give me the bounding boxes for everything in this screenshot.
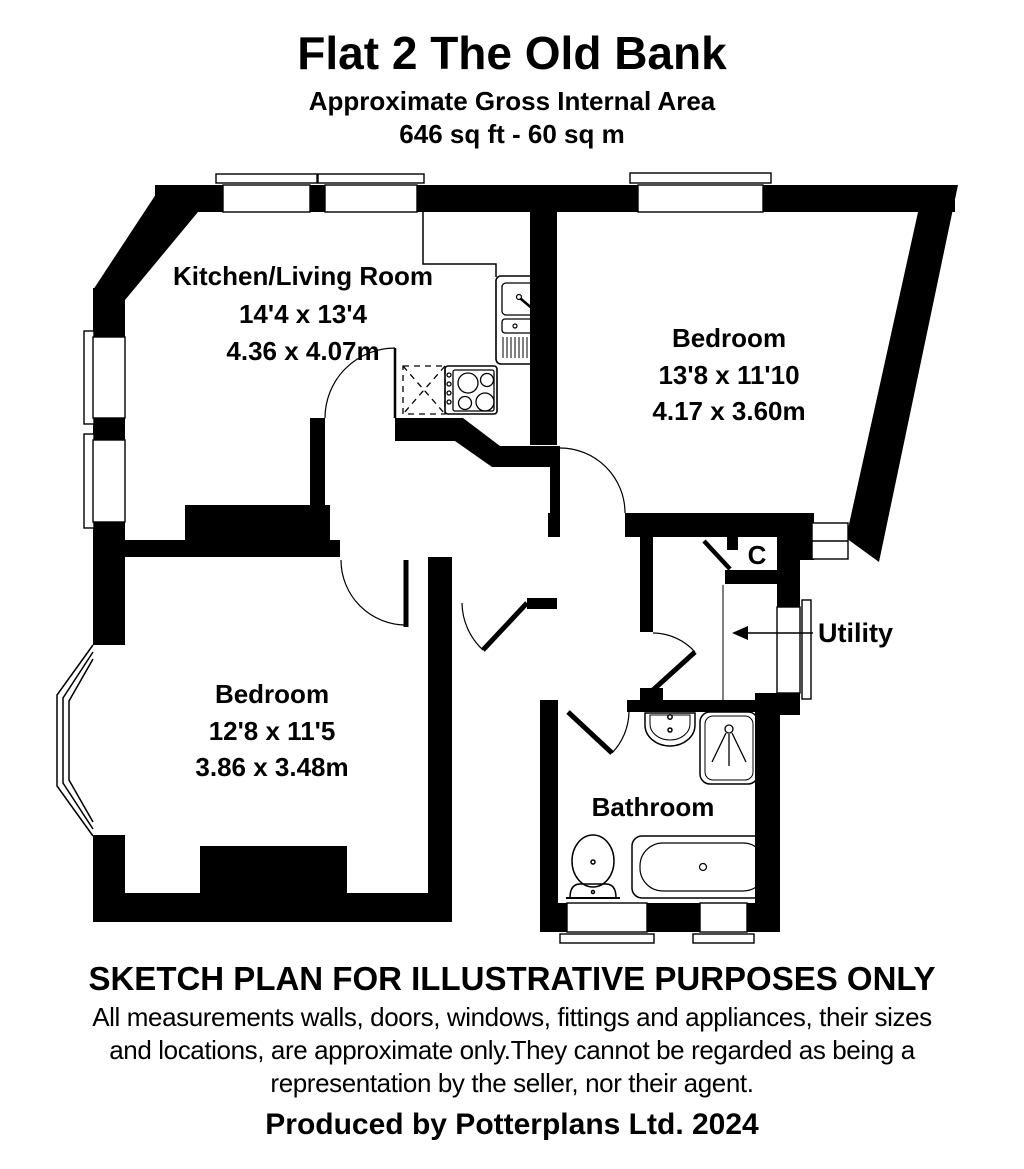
wall-slanted-right	[846, 185, 958, 562]
bedroom-right-size-metric: 4.17 x 3.60m	[652, 396, 805, 427]
wall-kitchen-bedroom-divider	[530, 212, 557, 445]
window-sill	[216, 174, 317, 183]
footer-disclaimer-line1: All measurements walls, doors, windows, …	[92, 1002, 932, 1033]
bedroom-left-label: Bedroom	[215, 679, 329, 710]
cupboard-door	[704, 541, 730, 569]
window-utility	[777, 607, 800, 693]
page-title: Flat 2 The Old Bank	[297, 26, 726, 80]
wall-lobby-stub	[640, 688, 663, 702]
worktop-edge	[423, 212, 496, 277]
toilet-icon	[566, 835, 620, 898]
footer-credit: Produced by Potterplans Ltd. 2024	[265, 1108, 758, 1142]
basin-icon	[645, 713, 695, 746]
window-sill	[802, 600, 811, 699]
window-kitchen-2	[325, 185, 417, 212]
window-left-1	[93, 337, 125, 418]
utility-arrow	[732, 626, 813, 640]
area-text: 646 sq ft - 60 sq m	[399, 119, 624, 150]
footer-heading: SKETCH PLAN FOR ILLUSTRATIVE PURPOSES ON…	[88, 960, 935, 998]
bedroom-right-size-imperial: 13'8 x 11'10	[658, 360, 799, 391]
bath-icon	[632, 836, 774, 898]
corridor-door	[462, 603, 527, 650]
window-sill	[560, 934, 654, 943]
wall-bedroom-right-bottom	[625, 513, 777, 537]
wall-lobby-west	[640, 537, 653, 632]
wall-cupboard-bottom	[725, 570, 778, 584]
kitchen-living-size-metric: 4.36 x 4.07m	[226, 336, 379, 367]
lobby-door	[653, 633, 695, 690]
window-kitchen-1	[223, 185, 310, 212]
wall-right-upper	[777, 513, 814, 560]
footer-disclaimer-line3: representation by the seller, nor their …	[270, 1068, 753, 1099]
bedroom-left-size-imperial: 12'8 x 11'5	[209, 716, 336, 747]
floorplan-page: Flat 2 The Old Bank Approximate Gross In…	[0, 0, 1024, 1169]
bedroom-right-door-leaf	[550, 448, 560, 513]
utility-arrowhead	[732, 626, 748, 640]
kitchen-fixtures	[403, 212, 546, 414]
page-subtitle: Approximate Gross Internal Area	[309, 86, 716, 117]
window-left-2	[93, 440, 125, 522]
bedroom-right-label: Bedroom	[672, 323, 786, 354]
wall-bathroom-left	[540, 700, 558, 932]
sink-unit-icon	[496, 276, 546, 364]
wall-pier-block	[185, 505, 330, 557]
bay-gap	[91, 645, 127, 835]
bedroom-left-size-metric: 3.86 x 3.48m	[195, 752, 348, 783]
bay-frame-mid	[63, 652, 93, 829]
shower-icon	[700, 712, 758, 784]
wall-bottom-bedroom	[93, 893, 452, 922]
kitchen-living-label: Kitchen/Living Room	[173, 261, 433, 292]
hob-icon	[445, 366, 497, 414]
bay-window	[57, 645, 127, 836]
appliance-space-icon	[403, 366, 445, 414]
chimney-breast	[200, 846, 347, 895]
wall-cupboard-stub	[727, 537, 738, 550]
window-sill	[318, 174, 424, 183]
footer-disclaimer-line2: and locations, are approximate only.They…	[109, 1035, 915, 1066]
bathroom-door	[568, 712, 629, 753]
wall-utility-right-top	[777, 557, 800, 609]
window-bathroom-1	[567, 903, 647, 932]
wall-bedroom-right-jamb	[548, 513, 560, 537]
wall-corridor-stub	[527, 598, 557, 609]
window-bathroom-2	[700, 903, 747, 932]
cupboard-label: C	[748, 540, 767, 571]
window-bedroom-right	[638, 185, 763, 212]
utility-label: Utility	[818, 618, 893, 649]
window-sill	[630, 173, 771, 183]
bedroom-left-door	[341, 560, 406, 627]
wall-bedroom-left-right	[428, 557, 452, 893]
kitchen-living-size-imperial: 14'4 x 13'4	[239, 299, 367, 330]
wall-kitchen-sw	[310, 418, 325, 510]
bedroom-right-door-arc	[560, 448, 625, 513]
bathroom-label: Bathroom	[592, 792, 715, 823]
window-sill	[693, 934, 754, 943]
